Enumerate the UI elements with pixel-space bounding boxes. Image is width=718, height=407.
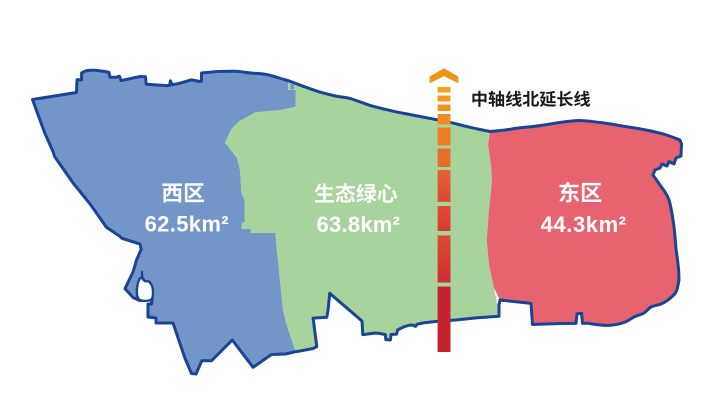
- svg-text:44.3km²: 44.3km²: [541, 212, 627, 237]
- svg-text:63.8km²: 63.8km²: [317, 212, 401, 237]
- svg-text:62.5km²: 62.5km²: [145, 211, 229, 236]
